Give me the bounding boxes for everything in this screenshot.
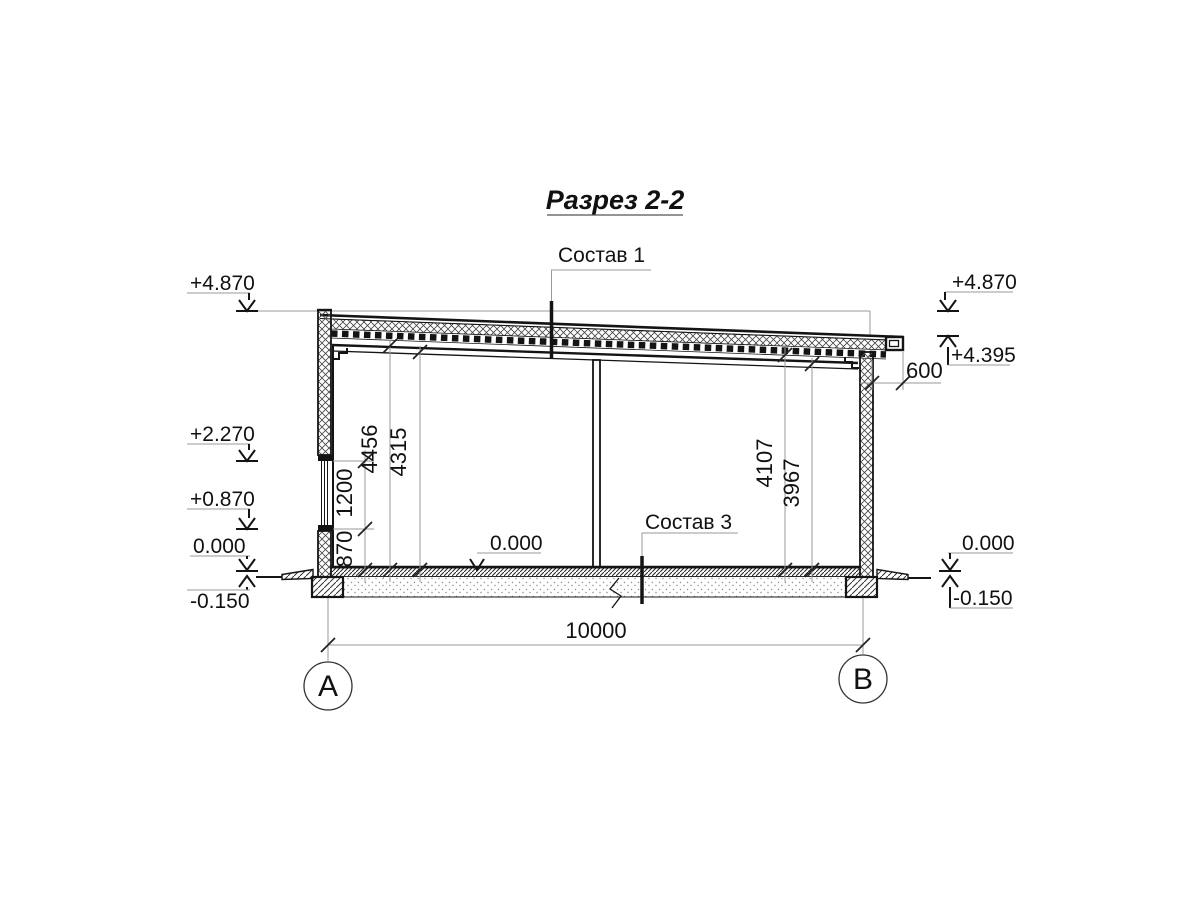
floor-and-ground bbox=[256, 567, 931, 608]
elevation-arrow-down bbox=[942, 559, 958, 570]
interior-floor-level-label: 0.000 bbox=[490, 532, 543, 555]
elevation-left-0000: 0.000 bbox=[190, 535, 258, 571]
drawing-title: Разрез 2-2 bbox=[546, 185, 685, 215]
elevation-label: 0.000 bbox=[962, 532, 1015, 555]
elevation-label: -0.150 bbox=[190, 590, 250, 613]
title-block: Разрез 2-2 bbox=[546, 185, 685, 215]
elevation-right-0000: 0.000 bbox=[939, 532, 1015, 571]
eave-fascia bbox=[886, 337, 903, 350]
elevation-left-minus0150: -0.150 bbox=[187, 576, 255, 613]
dimension-span-and-axes: 10000 А В bbox=[304, 598, 887, 710]
elevation-label: -0.150 bbox=[953, 587, 1013, 610]
roof-composition-label: Состав 1 bbox=[558, 244, 645, 267]
elevation-label: 0.000 bbox=[193, 535, 246, 558]
dim-600: 600 bbox=[906, 358, 943, 383]
interior-column bbox=[593, 360, 600, 567]
dim-3967: 3967 bbox=[779, 459, 804, 508]
dimensions-right: 4107 3967 bbox=[752, 348, 819, 582]
elevation-label: +4.870 bbox=[190, 272, 255, 295]
elevation-arrow-down bbox=[940, 300, 956, 311]
wall-left-upper bbox=[318, 310, 331, 455]
elevation-left-0870: +0.870 bbox=[187, 488, 258, 529]
elevation-arrow-down bbox=[239, 300, 255, 311]
elevation-arrow-down bbox=[239, 518, 255, 529]
window-sill-bar bbox=[318, 525, 334, 531]
wall-left-lower bbox=[318, 531, 331, 577]
elevation-left-2270: +2.270 bbox=[187, 423, 258, 461]
foundation-left bbox=[312, 577, 343, 597]
dim-870: 870 bbox=[332, 531, 357, 568]
elevation-right-4870: +4.870 bbox=[937, 271, 1017, 311]
drawing-sheet: Состав 1 Состав 3 0.000 870 1200 4456 43… bbox=[0, 0, 1200, 900]
window-head-bar bbox=[318, 455, 334, 461]
elevation-arrow-up bbox=[239, 576, 255, 587]
corbel-left bbox=[333, 348, 347, 359]
foundation-right bbox=[846, 577, 877, 597]
wall-right bbox=[860, 352, 873, 577]
section-drawing: Состав 1 Состав 3 0.000 870 1200 4456 43… bbox=[0, 0, 1200, 900]
floor-composition-label: Состав 3 bbox=[645, 511, 732, 534]
elevation-arrow-down bbox=[239, 450, 255, 461]
dim-4107: 4107 bbox=[752, 439, 777, 488]
axis-label-b: В bbox=[853, 663, 873, 696]
elevation-right-4395: +4.395 bbox=[937, 336, 1016, 367]
dim-4315: 4315 bbox=[386, 428, 411, 477]
elevation-marks-right: +4.870 +4.395 0.000 -0.150 bbox=[937, 271, 1017, 610]
apron-left bbox=[282, 570, 313, 580]
dim-10000: 10000 bbox=[565, 618, 626, 643]
elevation-label: +4.395 bbox=[951, 344, 1016, 367]
apron-right bbox=[877, 570, 908, 580]
axis-label-a: А bbox=[318, 670, 338, 703]
floor-base-layer bbox=[343, 577, 846, 597]
dim-1200: 1200 bbox=[332, 469, 357, 518]
dimensions-left: 870 1200 4456 4315 bbox=[332, 339, 427, 582]
interior-floor-level-mark: 0.000 bbox=[470, 532, 543, 570]
dim-4456: 4456 bbox=[357, 425, 382, 474]
elevation-label: +4.870 bbox=[952, 271, 1017, 294]
elevation-label: +2.270 bbox=[190, 423, 255, 446]
elevation-label: +0.870 bbox=[190, 488, 255, 511]
elevation-arrow-down bbox=[239, 559, 255, 570]
elevation-left-4870: +4.870 bbox=[187, 272, 258, 311]
elevation-right-minus0150: -0.150 bbox=[942, 576, 1013, 610]
elevation-marks-left: +4.870 +2.270 +0.870 0.000 bbox=[187, 272, 258, 613]
elevation-arrow-up bbox=[942, 576, 958, 587]
